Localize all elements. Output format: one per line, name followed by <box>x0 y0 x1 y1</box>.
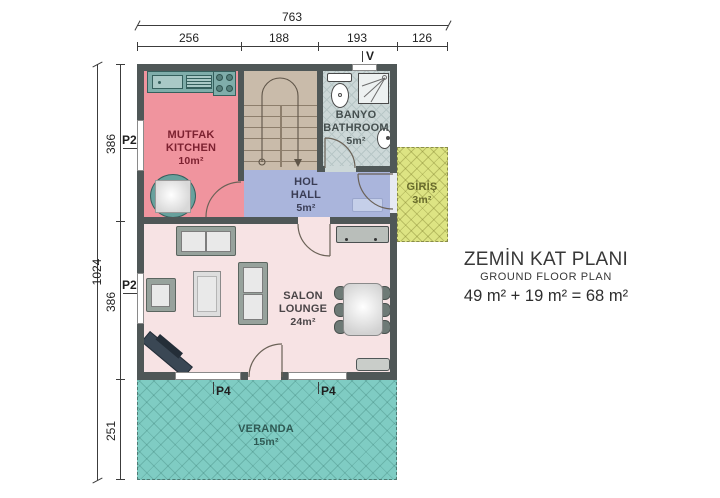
plan-title-english: GROUND FLOOR PLAN <box>455 271 637 284</box>
dim-left-seg-2: 386 <box>104 282 118 322</box>
stove-burner <box>216 74 223 81</box>
bathroom-name-en: BATHROOM <box>316 122 396 135</box>
armchair-cushion <box>151 284 170 307</box>
dim-tick <box>116 479 125 480</box>
sideboard <box>336 226 389 243</box>
dim-tick <box>116 379 125 380</box>
veranda-name-tr: VERANDA <box>221 423 311 436</box>
door-gap-lounge <box>298 217 330 224</box>
dim-left-seg-3: 251 <box>104 411 118 451</box>
door-gap-bathroom <box>325 166 356 172</box>
door-gap-veranda <box>248 372 281 380</box>
dim-tick <box>116 221 125 222</box>
sink-drain <box>158 81 161 84</box>
entry-name-tr: GİRİŞ <box>392 181 452 194</box>
bench <box>356 358 390 371</box>
hall-label: HOL HALL 5m² <box>266 176 346 215</box>
dim-top-seg-1: 256 <box>169 31 209 45</box>
dining-table <box>343 283 383 336</box>
dim-tick <box>137 42 138 51</box>
p2-underline <box>123 148 138 149</box>
dim-top-seg-line <box>137 46 448 47</box>
sofa-cushion <box>181 231 206 252</box>
hall-area: 5m² <box>266 202 346 215</box>
lounge-name-tr: SALON <box>263 290 343 303</box>
bathroom-area: 5m² <box>316 135 396 148</box>
bathroom-label: BANYO BATHROOM 5m² <box>316 109 396 148</box>
dim-tick <box>241 42 242 51</box>
toilet-drain <box>338 93 342 97</box>
window-vent-bathroom <box>352 64 377 71</box>
entry-label: GİRİŞ 3m² <box>392 181 452 207</box>
window-bottom-left <box>175 372 241 380</box>
lounge-name-en: LOUNGE <box>263 303 343 316</box>
p4-tick <box>318 382 319 394</box>
window-left-upper <box>137 120 144 171</box>
kitchen-tablecloth <box>155 180 191 213</box>
dim-top-seg-2: 188 <box>259 31 299 45</box>
coffee-table-top <box>197 276 217 312</box>
plan-area-equation: 49 m² + 19 m² = 68 m² <box>455 286 637 306</box>
lounge-label: SALON LOUNGE 24m² <box>263 290 343 329</box>
vent-tick <box>362 51 363 62</box>
kitchen-label: MUTFAK KITCHEN 10m² <box>151 129 231 168</box>
door-label-p4-right: P4 <box>321 384 336 398</box>
dim-tick <box>318 42 319 51</box>
sofa-cushion <box>243 267 263 293</box>
door-label-p4-left: P4 <box>216 384 231 398</box>
dim-tick <box>116 64 125 65</box>
stove-burner <box>226 85 233 92</box>
window-bottom-right <box>288 372 347 380</box>
entry-area: 3m² <box>392 194 452 207</box>
hall-name-en: HALL <box>266 189 346 202</box>
stove-burner <box>216 85 223 92</box>
dim-top-seg-4: 126 <box>402 31 442 45</box>
veranda-label: VERANDA 15m² <box>221 423 311 449</box>
sideboard-leg <box>374 238 377 241</box>
sofa-cushion <box>206 231 231 252</box>
wall-hall-lounge <box>137 217 397 224</box>
floor-plan-canvas: 763 256 188 193 126 V 1024 386 386 251 P… <box>0 0 720 498</box>
dim-left-seg-line <box>120 64 121 480</box>
door-label-p2-upper: P2 <box>122 133 137 147</box>
kitchen-name-tr: MUTFAK <box>151 129 231 142</box>
dim-tick <box>397 42 398 51</box>
kitchen-sink <box>152 75 183 89</box>
p4-tick <box>213 382 214 394</box>
sofa-cushion <box>243 294 263 320</box>
window-left-lower <box>137 273 144 324</box>
vent-marker: V <box>366 49 374 63</box>
entry-mat <box>352 198 383 212</box>
bathroom-name-tr: BANYO <box>316 109 396 122</box>
kitchen-area: 10m² <box>151 155 231 168</box>
sideboard-leg <box>345 238 348 241</box>
dim-top-total: 763 <box>272 10 312 24</box>
door-label-p2-lower: P2 <box>122 278 137 292</box>
hall-name-tr: HOL <box>266 176 346 189</box>
lounge-area: 24m² <box>263 316 343 329</box>
plan-title-turkish: ZEMİN KAT PLANI <box>455 250 637 270</box>
stove-burner <box>226 74 233 81</box>
dim-left-seg-1: 386 <box>104 124 118 164</box>
dim-tick <box>447 42 448 51</box>
kitchen-drainer <box>186 75 212 89</box>
p2-underline <box>123 293 138 294</box>
title-block: ZEMİN KAT PLANI GROUND FLOOR PLAN 49 m² … <box>455 250 637 306</box>
veranda-area: 15m² <box>221 436 311 449</box>
dim-left-total: 1024 <box>90 247 104 297</box>
shower-tray <box>358 73 389 104</box>
door-gap-kitchen <box>238 181 244 217</box>
dim-top-total-line <box>137 25 448 26</box>
kitchen-name-en: KITCHEN <box>151 142 231 155</box>
toilet-tank <box>327 73 352 82</box>
dim-top-seg-3: 193 <box>337 31 377 45</box>
stair-divider <box>280 105 282 167</box>
